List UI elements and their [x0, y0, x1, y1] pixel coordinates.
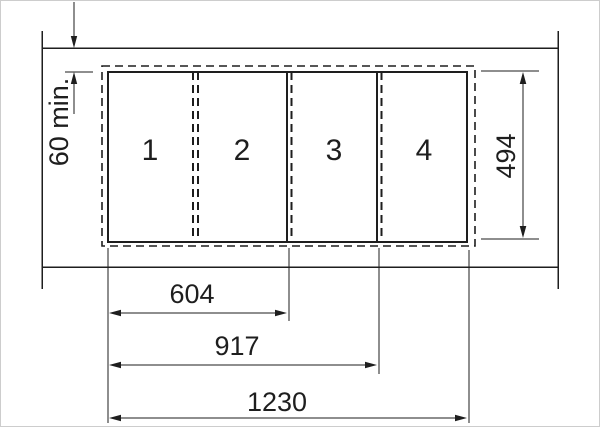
dim-width-604-arrow-right [275, 310, 287, 317]
dim-pane-height-arrow-down [520, 226, 527, 238]
pane-4-label: 4 [416, 134, 433, 167]
dim-width-604-value: 604 [169, 279, 214, 309]
technical-drawing-page: 1 2 3 4 60 min. 494 [0, 0, 600, 427]
pane-2-label: 2 [234, 134, 251, 167]
dim-width-604-arrow-left [109, 310, 121, 317]
dim-top-clearance-arrow-down [71, 36, 77, 48]
pane-1-label: 1 [142, 134, 159, 167]
dim-width-604: 604 [109, 279, 287, 316]
panes-dimension-drawing: 1 2 3 4 60 min. 494 [0, 0, 600, 427]
pane-3-label: 3 [326, 134, 343, 167]
dim-width-917-arrow-right [365, 362, 377, 369]
dim-width-1230-value: 1230 [247, 387, 307, 417]
dim-pane-height-arrow-up [520, 72, 527, 84]
dim-top-clearance: 60 min. [44, 2, 93, 166]
dim-width-1230-arrow-left [109, 415, 121, 422]
dim-width-917: 917 [109, 331, 377, 368]
dim-width-917-arrow-left [109, 362, 121, 369]
dim-width-1230: 1230 [109, 387, 467, 421]
dim-pane-height-value: 494 [491, 133, 521, 178]
dim-top-clearance-value: 60 min. [44, 78, 74, 167]
dim-pane-height: 494 [481, 71, 539, 239]
dim-width-917-value: 917 [214, 331, 259, 361]
dim-width-1230-arrow-right [455, 415, 467, 422]
